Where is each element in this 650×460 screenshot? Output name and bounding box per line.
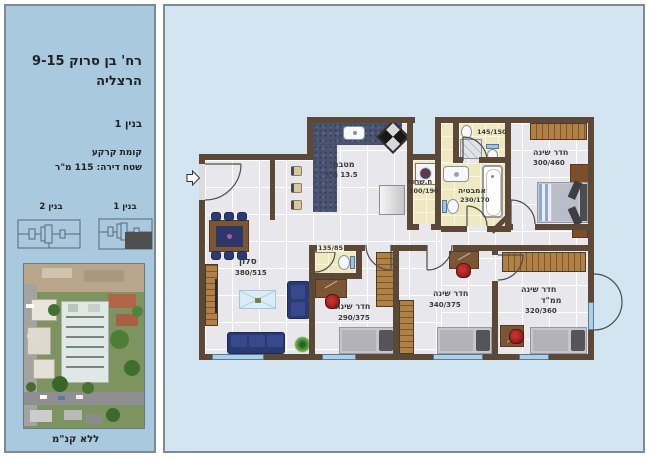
wc-top-dims: 145/150	[477, 129, 507, 136]
photo-building	[86, 414, 102, 424]
entrance-door-arc	[205, 164, 241, 200]
sidebar-panel: רח' בן סרוק 9-15 הרצליה בנין 1 קומת קרקע…	[4, 4, 156, 453]
photo-building	[28, 328, 50, 354]
address-line2: הרצליה	[96, 74, 142, 89]
photo-structure	[42, 268, 72, 278]
photo-tree	[124, 360, 140, 376]
utility-dims: 100/190	[409, 188, 439, 195]
bedroom2-door-arc	[366, 245, 391, 270]
photo-building	[64, 410, 82, 420]
wc-small-dims: 135/85	[317, 245, 344, 252]
exterior-double-door-arcs	[594, 274, 622, 330]
bedroom3-door-arc	[427, 245, 452, 270]
wc-small-door-arc	[315, 252, 335, 272]
photo-window-rows	[66, 316, 104, 376]
mamad-dims: 320/360	[525, 308, 557, 315]
photo-tree	[106, 408, 120, 422]
mamad-label2: ממ"ד	[541, 297, 561, 305]
unit-location-highlight	[125, 232, 152, 249]
photo-building	[30, 410, 52, 422]
photo-tree	[132, 306, 143, 317]
kitchen-label: מטבח	[333, 161, 355, 169]
living-label: סלון	[239, 258, 257, 267]
building1-key-plan	[97, 214, 155, 256]
door-swing-overlay	[165, 6, 647, 455]
photo-tree	[52, 376, 68, 392]
photo-building	[34, 360, 54, 378]
bathroom-dims: 230/170	[460, 197, 490, 204]
living-dims: 380/515	[235, 270, 267, 277]
bedroom3-dims: 340/375	[429, 302, 461, 309]
mamad-door-arc	[498, 255, 523, 280]
address-title: רח' בן סרוק 9-15 הרצליה	[32, 52, 142, 92]
wc-top-door-arc	[463, 137, 487, 161]
floor-area-info: קומת קרקע שטח דירה: 115 מ"ר	[55, 146, 142, 176]
bedroom3-label: חדר שינה	[433, 290, 468, 298]
mini-plan-right-label: בנין 1	[97, 202, 153, 212]
mini-plan-left-label: בנין 2	[18, 202, 84, 212]
bathroom-door-arc	[467, 206, 487, 226]
kitchen-dims: 13.5 מ"ר	[325, 172, 358, 179]
photo-tree	[110, 330, 129, 349]
scale-note: ללא קנ"מ	[52, 434, 99, 445]
photo-car	[40, 395, 47, 399]
photo-car	[76, 395, 83, 399]
apartment-area-label: שטח דירה: 115 מ"ר	[55, 163, 142, 173]
photo-tree	[26, 382, 36, 392]
floor-label: קומת קרקע	[92, 148, 142, 158]
mamad-label: חדר שינה	[521, 286, 556, 294]
master-bedroom-label: חדר שינה	[533, 149, 568, 157]
photo-tree	[82, 382, 94, 394]
photo-roof-unit	[88, 304, 100, 312]
photo-structure	[84, 270, 124, 282]
building2-key-plan	[16, 214, 84, 256]
aerial-photo	[24, 264, 144, 428]
photo-tree	[48, 304, 60, 316]
photo-roof-unit	[68, 304, 78, 312]
master-bedroom-dims: 300/460	[533, 160, 565, 167]
photo-car	[27, 334, 35, 338]
master-door-arc	[511, 200, 535, 224]
address-line1: רח' בן סרוק 9-15	[32, 54, 142, 69]
utility-label: ח.שרות	[408, 179, 432, 186]
bedroom2-dims: 290/375	[338, 315, 370, 322]
photo-car	[26, 304, 34, 308]
floorplan-panel: מטבח 13.5 מ"ר ח.שרות 100/190 אמבטיה 230/…	[163, 4, 645, 453]
diagonal-wall	[492, 216, 508, 232]
bathroom-label: אמבטיה	[458, 187, 486, 195]
photo-car	[58, 396, 65, 400]
photo-main-building	[62, 302, 108, 382]
entrance-arrow-icon	[187, 171, 200, 185]
bedroom2-label: חדר שינה	[335, 303, 370, 311]
building-label: בנין 1	[115, 119, 142, 130]
photo-red-roof	[108, 294, 136, 308]
